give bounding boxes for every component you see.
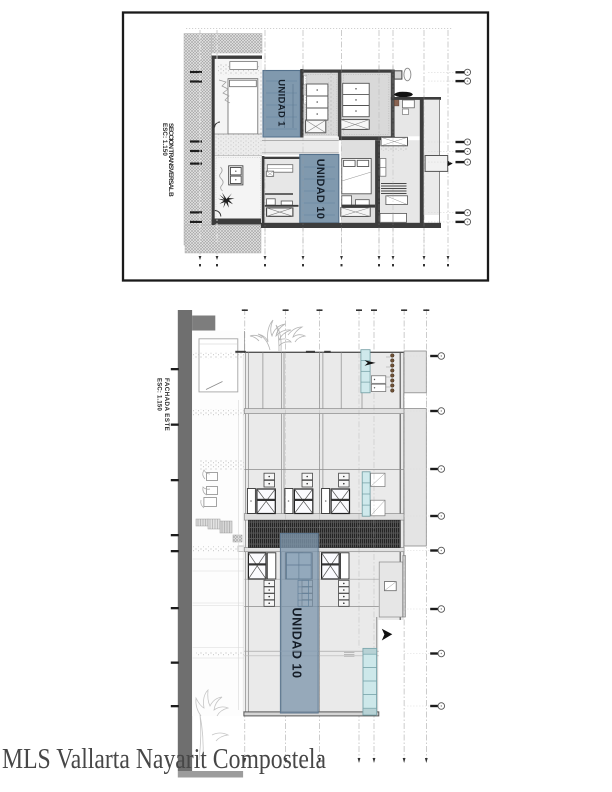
svg-text:UNIDAD 10: UNIDAD 10: [290, 608, 304, 679]
svg-text:ESC: 1.150: ESC: 1.150: [156, 378, 162, 411]
svg-text:UNIDAD 10: UNIDAD 10: [314, 159, 326, 220]
svg-text:MLS Vallarta Nayarit Compostel: MLS Vallarta Nayarit Compostela: [2, 744, 326, 775]
svg-text:ESC: 1.150: ESC: 1.150: [161, 123, 168, 156]
svg-text:UNIDAD 1: UNIDAD 1: [277, 79, 288, 126]
svg-text:FACHADA ESTE: FACHADA ESTE: [163, 378, 170, 431]
